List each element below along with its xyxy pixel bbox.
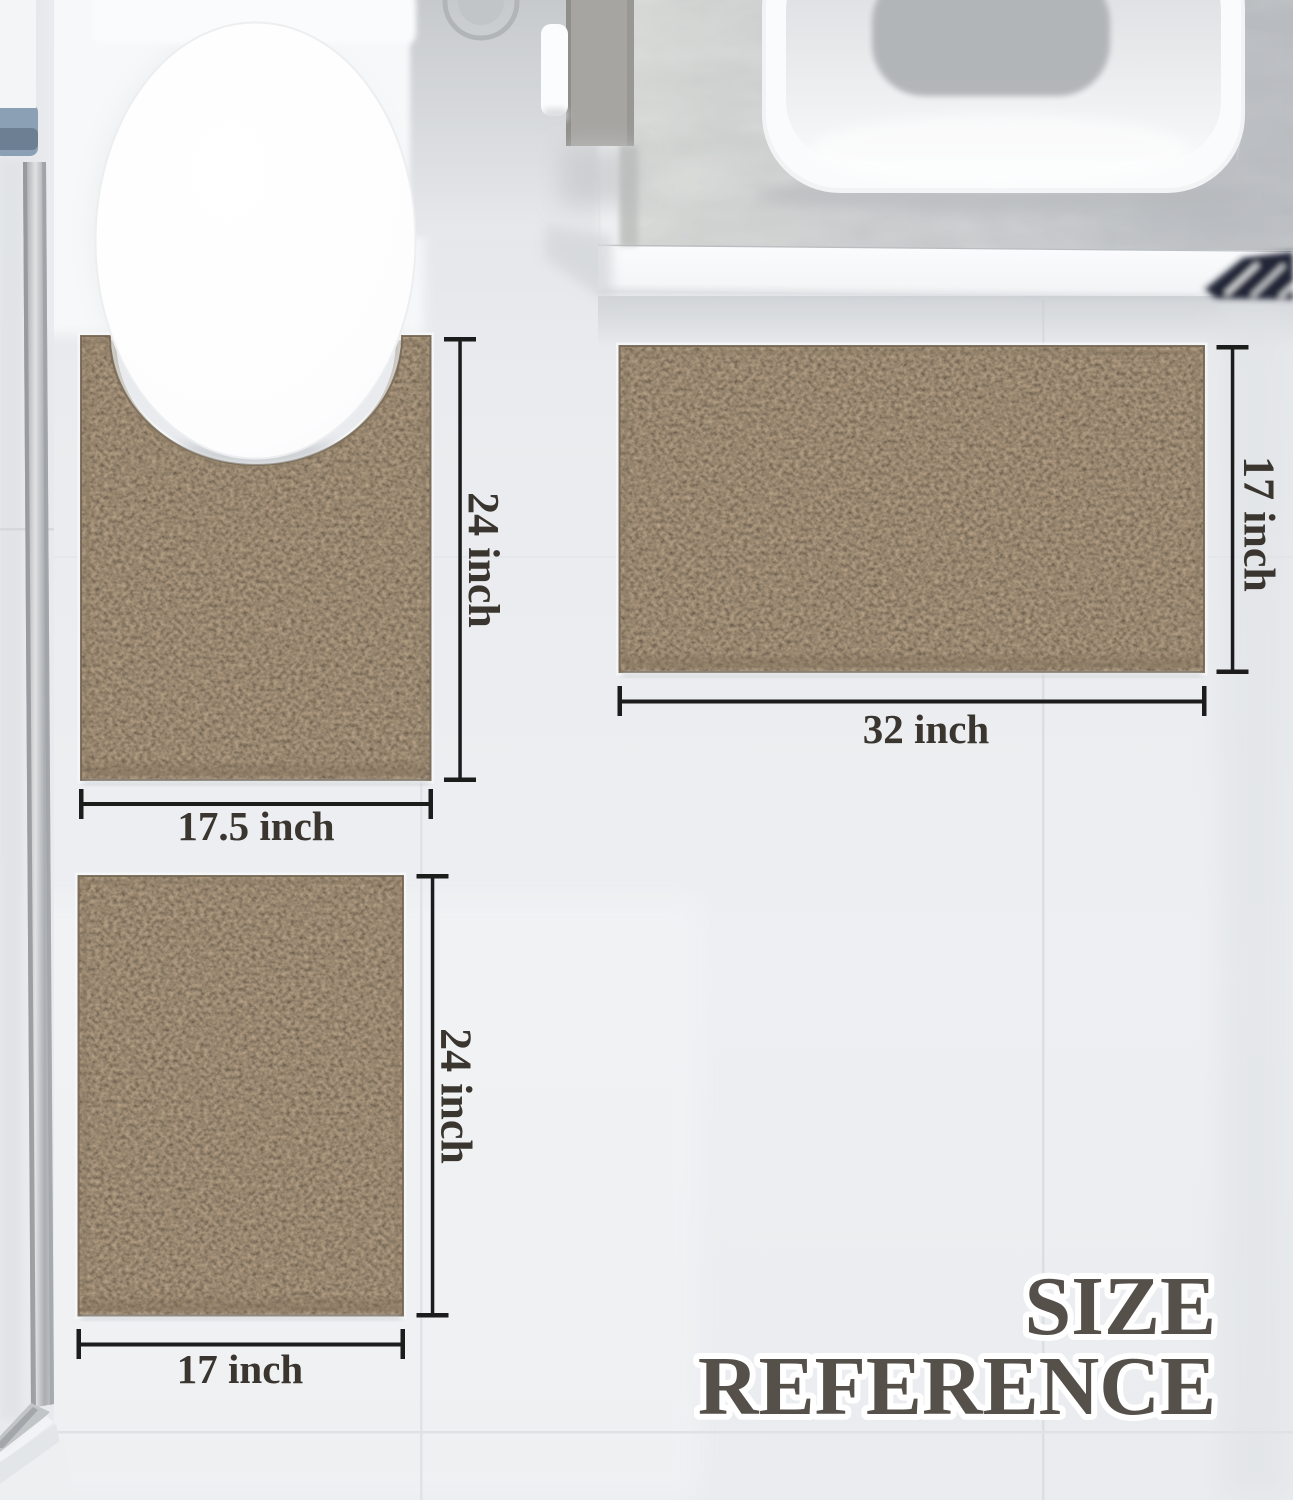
svg-text:17 inch: 17 inch (1235, 456, 1284, 592)
svg-text:REFERENCE: REFERENCE (698, 1340, 1216, 1433)
svg-text:17 inch: 17 inch (177, 1346, 304, 1392)
svg-text:17.5 inch: 17.5 inch (177, 803, 334, 849)
svg-text:24 inch: 24 inch (432, 1028, 481, 1164)
svg-text:24 inch: 24 inch (459, 492, 508, 628)
svg-text:32 inch: 32 inch (863, 706, 990, 752)
